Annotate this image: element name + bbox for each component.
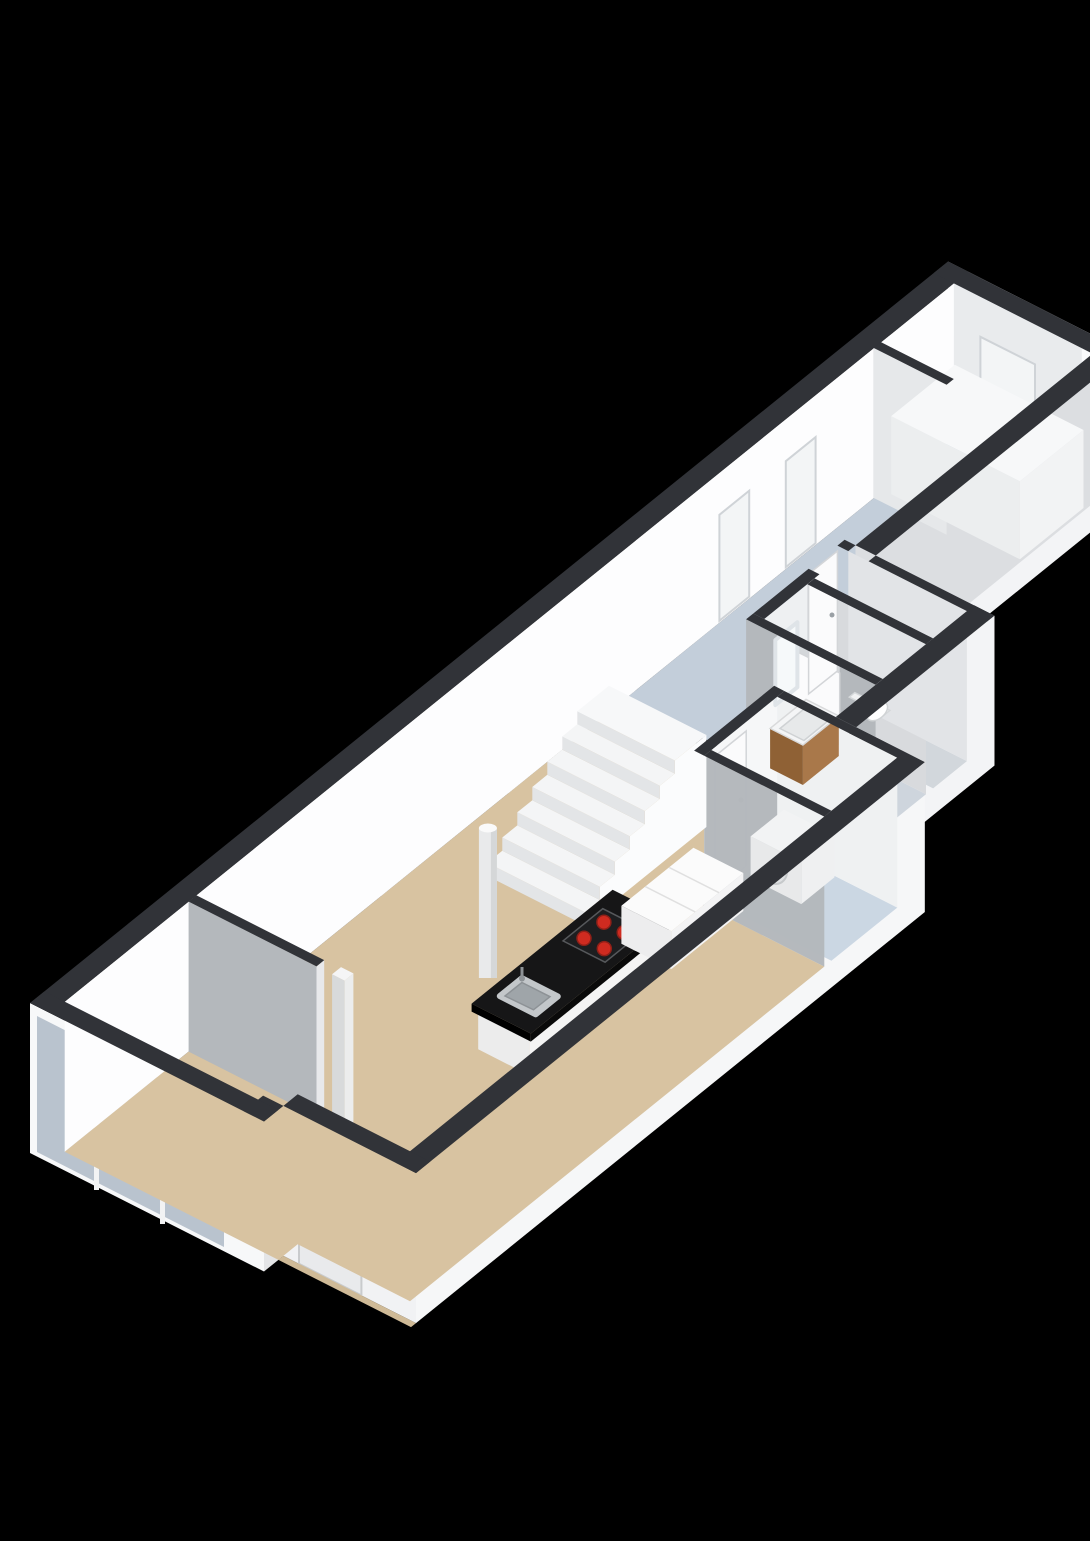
floorplan-3d-render: 3D floor plan — elongated apartment, iso…: [0, 0, 1090, 1541]
hob-burner: [577, 931, 591, 945]
column-cap: [479, 824, 497, 833]
floorplan-canvas: 3D floor plan — elongated apartment, iso…: [0, 0, 1090, 1541]
column-partition: Column: [332, 967, 353, 1131]
door-handle: [830, 613, 835, 618]
sink-faucet-arm: [521, 967, 524, 979]
hob-burner: [597, 942, 611, 956]
partition-end-cap: [317, 960, 325, 1116]
corridor-door-frame: [786, 437, 816, 567]
column-face-sw: [332, 974, 345, 1130]
column-shaft-shade: [491, 828, 497, 978]
column-face-se: [345, 973, 354, 1130]
column-kitchen: Column: [479, 824, 497, 979]
hob-burner: [597, 915, 611, 929]
corridor-door-frame: [719, 491, 749, 621]
